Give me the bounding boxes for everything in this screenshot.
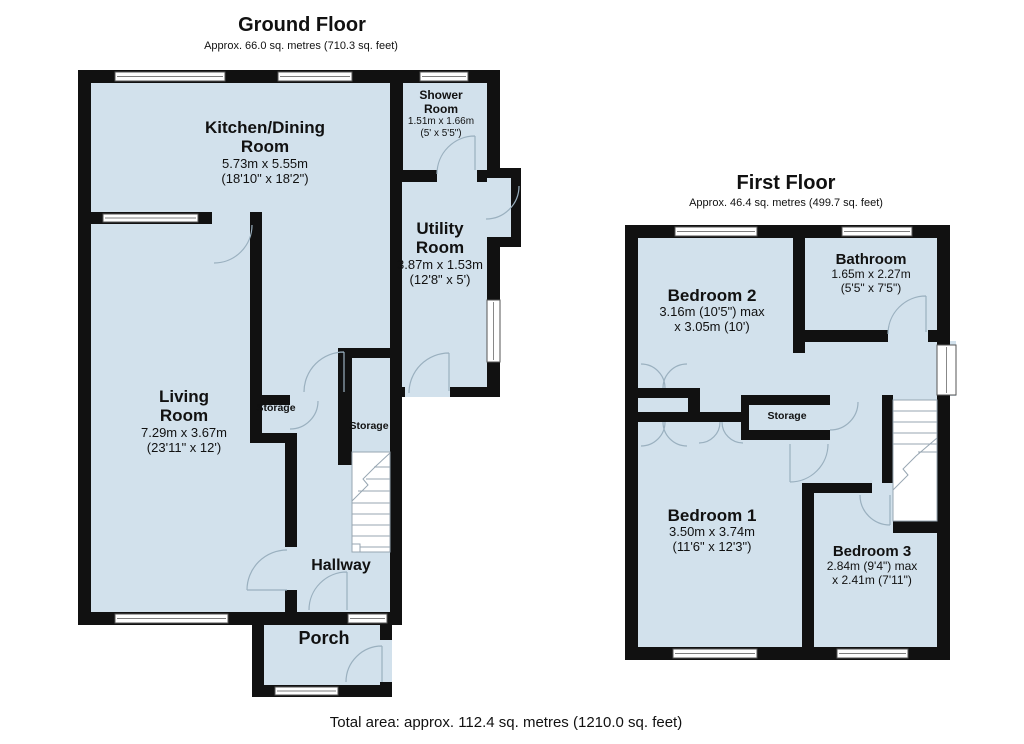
label-bedroom-3: Bedroom 3 2.84m (9'4") max x 2.41m (7'11… [827,543,918,587]
ground-floor-stairs [352,452,390,552]
window [673,649,757,658]
label-living-room: Living Room 7.29m x 3.67m (23'11" x 12') [141,387,227,455]
window [115,72,225,81]
label-storage-ground-right: Storage [349,421,388,433]
ground-floor-subtitle: Approx. 66.0 sq. metres (710.3 sq. feet) [204,40,398,53]
window [837,649,908,658]
label-bedroom-1: Bedroom 1 3.50m x 3.74m (11'6" x 12'3") [668,506,757,555]
label-hallway: Hallway [311,557,371,575]
first-floor-subtitle: Approx. 46.4 sq. metres (499.7 sq. feet) [689,197,883,210]
window [420,72,468,81]
label-shower-room: Shower Room 1.51m x 1.66m (5' x 5'5") [408,89,474,139]
label-kitchen-dining-room: Kitchen/Dining Room 5.73m x 5.55m (18'10… [205,118,325,186]
floorplans-svg [0,0,1024,744]
window [842,227,912,236]
label-bathroom: Bathroom 1.65m x 2.27m (5'5" x 7'5") [831,251,910,295]
window [937,345,956,395]
label-storage-first: Storage [767,411,806,423]
first-floor-stairs [893,400,937,521]
floorplan-page: Ground Floor Approx. 66.0 sq. metres (71… [0,0,1024,744]
window [348,614,387,623]
label-utility-room: Utility Room 3.87m x 1.53m (12'8" x 5') [397,219,483,287]
label-bedroom-2: Bedroom 2 3.16m (10'5") max x 3.05m (10'… [659,286,764,335]
window [103,214,198,222]
label-porch: Porch [298,628,349,649]
window [275,687,338,695]
label-storage-ground-left: Storage [256,403,295,415]
total-area-text: Total area: approx. 112.4 sq. metres (12… [330,714,682,731]
first-floor-title: First Floor [737,172,836,195]
window [115,614,228,623]
window [487,300,500,362]
window [675,227,757,236]
window [278,72,352,81]
ground-floor-title: Ground Floor [238,14,366,37]
